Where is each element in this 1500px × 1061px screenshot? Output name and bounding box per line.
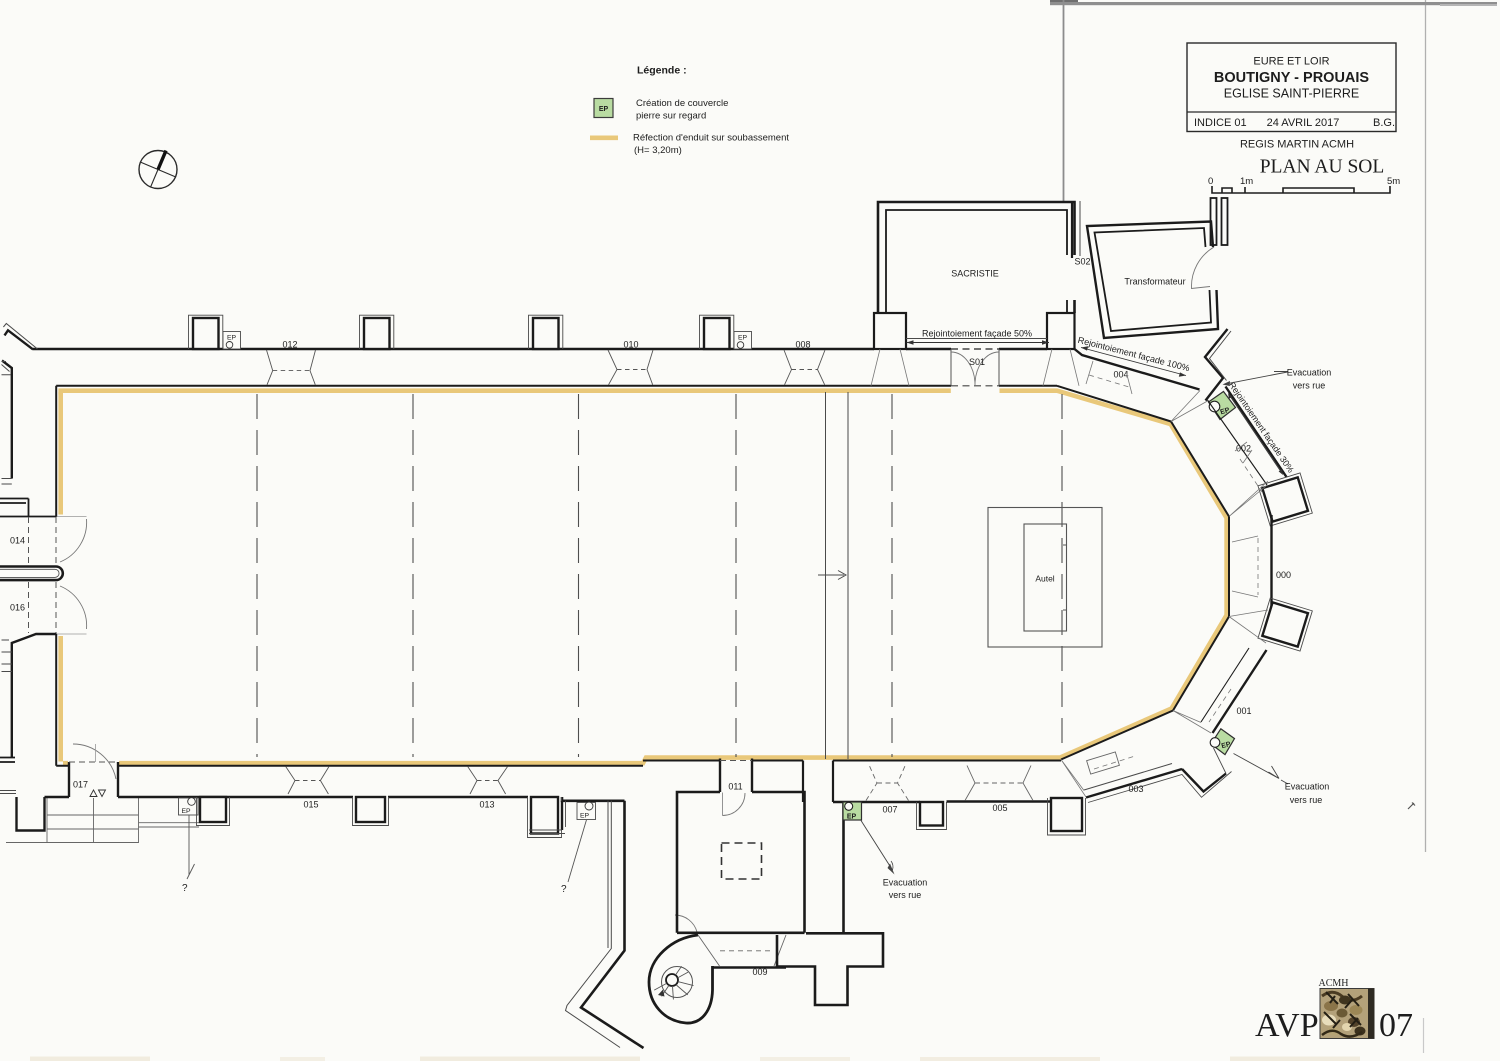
svg-text:001: 001 — [1236, 706, 1251, 716]
svg-text:EP: EP — [580, 813, 590, 820]
svg-text:Légende :: Légende : — [637, 65, 687, 77]
svg-text:PLAN AU SOL: PLAN AU SOL — [1260, 157, 1385, 178]
svg-text:AVP: AVP — [1255, 1007, 1319, 1044]
svg-text:Transformateur: Transformateur — [1124, 277, 1185, 287]
svg-text:ACMH: ACMH — [1318, 978, 1348, 989]
svg-text:EP: EP — [599, 106, 609, 113]
svg-text:24 AVRIL 2017: 24 AVRIL 2017 — [1267, 117, 1340, 129]
svg-text:011: 011 — [728, 782, 742, 792]
svg-text:vers rue: vers rue — [1293, 381, 1326, 391]
svg-text:(H= 3,20m): (H= 3,20m) — [634, 145, 682, 156]
svg-text:EGLISE SAINT-PIERRE: EGLISE SAINT-PIERRE — [1224, 87, 1359, 101]
svg-text:014: 014 — [10, 536, 25, 546]
svg-text:012: 012 — [282, 340, 297, 350]
svg-text:REGIS MARTIN ACMH: REGIS MARTIN ACMH — [1240, 139, 1354, 151]
svg-text:Réfection d'enduit sur soubass: Réfection d'enduit sur soubassement — [633, 133, 789, 144]
svg-text:009: 009 — [752, 967, 767, 977]
svg-text:Création de couvercle: Création de couvercle — [636, 98, 728, 109]
svg-text:07: 07 — [1379, 1007, 1413, 1044]
svg-text:003: 003 — [1128, 784, 1143, 794]
svg-text:EP: EP — [181, 808, 191, 815]
svg-text:EURE ET LOIR: EURE ET LOIR — [1253, 56, 1329, 68]
svg-text:Evacuation: Evacuation — [1285, 782, 1330, 792]
svg-text:?: ? — [182, 883, 188, 894]
svg-text:015: 015 — [303, 800, 318, 810]
svg-text:EP: EP — [227, 335, 237, 342]
svg-text:?: ? — [561, 884, 567, 895]
svg-text:Rejointoiement façade 50%: Rejointoiement façade 50% — [922, 329, 1032, 339]
svg-text:0: 0 — [1208, 176, 1213, 187]
svg-text:B.G.: B.G. — [1373, 117, 1395, 129]
svg-text:EP: EP — [738, 335, 748, 342]
svg-text:1m: 1m — [1240, 176, 1253, 187]
svg-text:Evacuation: Evacuation — [883, 878, 928, 888]
svg-text:pierre sur regard: pierre sur regard — [636, 111, 706, 122]
svg-text:007: 007 — [882, 805, 897, 815]
svg-text:S01: S01 — [969, 357, 985, 367]
svg-text:SACRISTIE: SACRISTIE — [951, 269, 999, 279]
svg-text:BOUTIGNY - PROUAIS: BOUTIGNY - PROUAIS — [1214, 70, 1370, 86]
svg-text:S02: S02 — [1074, 257, 1090, 267]
svg-text:017: 017 — [73, 780, 88, 790]
svg-text:vers rue: vers rue — [1290, 795, 1323, 805]
svg-text:000: 000 — [1276, 570, 1291, 580]
svg-text:Evacuation: Evacuation — [1287, 368, 1332, 378]
svg-text:vers rue: vers rue — [889, 890, 922, 900]
svg-text:5m: 5m — [1387, 176, 1400, 187]
svg-text:016: 016 — [10, 603, 25, 613]
svg-text:Autel: Autel — [1035, 574, 1054, 584]
svg-text:008: 008 — [795, 340, 810, 350]
svg-text:013: 013 — [479, 800, 494, 810]
svg-text:005: 005 — [992, 803, 1007, 813]
svg-text:INDICE 01: INDICE 01 — [1194, 117, 1247, 129]
svg-text:EP: EP — [847, 814, 857, 821]
svg-text:010: 010 — [623, 340, 638, 350]
